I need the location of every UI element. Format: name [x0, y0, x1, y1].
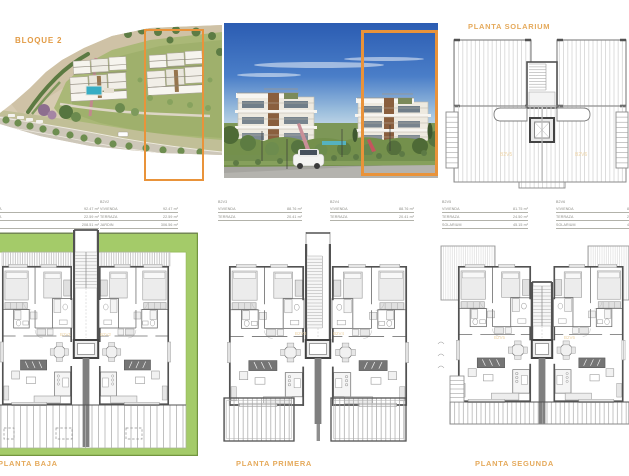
svg-text:B2V5: B2V5: [494, 335, 506, 340]
svg-text:B2V3: B2V3: [295, 331, 307, 336]
svg-text:B2V1: B2V1: [60, 332, 72, 337]
svg-text:B2V4: B2V4: [333, 331, 345, 336]
svg-text:B2V6: B2V6: [564, 335, 576, 340]
svg-text:B2V6: B2V6: [575, 152, 587, 158]
svg-text:B2V2: B2V2: [100, 332, 112, 337]
svg-text:B2V5: B2V5: [500, 152, 512, 158]
